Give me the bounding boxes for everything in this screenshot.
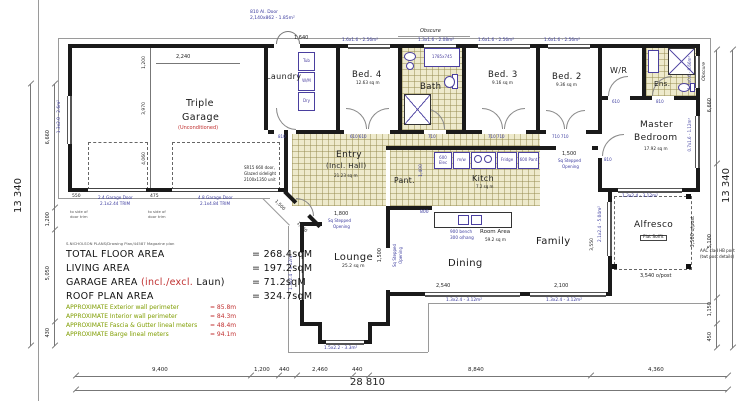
garage-door-1-size: 2.1x2.44 TRIM <box>100 202 130 206</box>
garage-door-2-label: 4.8 Garage Door <box>198 196 233 200</box>
wall-segment <box>284 130 288 192</box>
wall-segment <box>386 210 390 248</box>
kitchen-ohang-label: 300 o/hang <box>450 236 474 240</box>
dim-bottom-9400: 9,400 <box>152 368 168 374</box>
roof-outline <box>710 38 711 304</box>
floor-plan-drawing: Tub W/M Dry 1785x745 600 Elec m/w Fridge… <box>0 0 750 401</box>
dim-line-left-segments <box>54 84 55 346</box>
garage-label-red-part: (incl./excl. <box>141 277 193 288</box>
drawing-fine-print: S.NICHOLSON PLANS/Drawing Plan/44587 Mag… <box>66 242 174 246</box>
wall-segment <box>630 96 652 100</box>
roof-outline <box>58 38 710 39</box>
door-arc-bed4-robe <box>346 108 367 129</box>
dim-tick <box>52 204 58 210</box>
wall-segment <box>364 340 372 344</box>
wall-segment <box>268 130 274 134</box>
table-label-garage: GARAGE AREA (incl./excl. Laun) <box>66 277 225 288</box>
wall-segment <box>372 322 390 326</box>
wall-segment <box>68 44 274 48</box>
wall-segment <box>696 44 700 56</box>
dim-2540: 2,540 <box>436 284 450 289</box>
approx-exterior-label: APPROXIMATE Exterior wall perimeter <box>66 305 179 311</box>
wall-segment <box>386 146 542 150</box>
dim-right-5100: 5,100 <box>708 234 713 248</box>
dim-line-garage <box>150 48 151 188</box>
dim-800-kitchen: 800 <box>420 211 429 216</box>
door-size-wr: 610 <box>612 100 620 104</box>
sr15-note-2: Glazed sidelight <box>244 172 276 176</box>
room-area-value: 59.2 sq m <box>485 238 506 242</box>
door-arc-bed2 <box>566 110 585 129</box>
dim-tick <box>714 320 720 326</box>
window-label-bay: 1.5x2.2 - 3.3m² <box>324 347 357 351</box>
approx-barge-label: APPROXIMATE Barge lineal meters <box>66 332 169 338</box>
wall-segment <box>318 322 322 342</box>
wall-segment <box>606 292 612 296</box>
window-label-master-bottom: 1.3x2.4 - 3.12m² <box>622 195 658 199</box>
window-bay <box>326 340 364 345</box>
dim-right-total: 13 340 <box>722 168 732 203</box>
bathtub-icon: 1785x745 <box>424 48 460 67</box>
window-dining-2 <box>530 292 606 297</box>
approx-fascia-value: = 48.4m <box>210 323 236 329</box>
wall-segment <box>146 188 172 192</box>
wall-segment <box>642 48 646 96</box>
garage-label-part: GARAGE AREA <box>66 277 141 288</box>
wall-segment <box>696 88 700 116</box>
dim-line-right-total <box>732 50 733 348</box>
wall-segment <box>296 130 344 134</box>
garage-door-recess <box>88 142 148 190</box>
dim-right-6660: 6,660 <box>708 98 713 112</box>
dim-tick <box>714 344 720 350</box>
wall-segment <box>526 130 546 134</box>
entry-opening-dim: 1,800 <box>334 212 348 217</box>
dim-left-6660: 6,660 <box>46 130 51 144</box>
family-opening-dim: 1,500 <box>562 152 576 157</box>
roof-outline <box>58 198 270 199</box>
table-label-living: LIVING AREA <box>66 263 130 274</box>
room-label-laundry: Laundry <box>266 72 301 81</box>
dim-right-1150: 1,150 <box>708 302 713 316</box>
door-arc-wr <box>608 76 628 96</box>
dryer-icon: Dry <box>298 92 315 111</box>
sr15-note-3: 2100x1350 unit <box>244 178 276 182</box>
room-label-pantry: Pant. <box>394 176 415 185</box>
area-label-bed2: 9.36 sq m <box>556 83 577 87</box>
room-label-master-2: Bedroom <box>634 133 678 143</box>
door-size-master: 810 <box>604 158 612 162</box>
dim-line-left-total <box>30 84 31 346</box>
wall-segment <box>608 256 612 296</box>
approx-fascia-label: APPROXIMATE Fascia & Gutter lineal meter… <box>66 323 197 329</box>
window-label-garage: 1.3x2.0 - 2.6m² <box>58 100 62 133</box>
dim-3540-opost: 3,540 o/post <box>640 274 671 279</box>
shower-icon <box>404 94 431 125</box>
obscure-note-top: Obscure <box>420 29 441 34</box>
wall-segment <box>682 188 700 192</box>
dim-bottom-8840: 8,840 <box>468 368 484 374</box>
door-arc-bed3 <box>482 108 503 129</box>
dim-line-right-segments <box>716 50 717 348</box>
dim-3970: 3,970 <box>143 102 148 115</box>
garage-door-1-label: 2.4 Garage Door <box>98 196 133 200</box>
door-size-bath: 710 <box>428 135 436 139</box>
wall-segment <box>68 188 88 192</box>
basin-icon <box>404 52 416 61</box>
lounge-opening-note-1: Sq Stepped <box>393 244 397 267</box>
wall-segment <box>520 292 530 296</box>
sink-bowl-icon <box>484 155 492 163</box>
dim-tick <box>725 386 731 392</box>
obscure-note-right: Obscure <box>703 62 708 81</box>
wall-segment <box>536 48 540 130</box>
wall-segment <box>592 146 598 150</box>
dim-bottom-total: 28 810 <box>350 378 385 388</box>
wall-segment <box>446 130 482 134</box>
alfresco-post <box>686 194 691 199</box>
garage-door-2-size: 2.1x4.84 TRIM <box>200 202 230 206</box>
dim-left-430: 430 <box>46 328 51 338</box>
dim-line-bottom-total <box>75 390 727 391</box>
window-bed3 <box>478 44 530 49</box>
dim-1400-kitchen: 1,400 <box>420 164 425 177</box>
door-arc-master <box>602 134 624 156</box>
wall-segment <box>586 130 598 134</box>
dim-475: 475 <box>150 195 159 200</box>
dim-3550: 3,550 <box>591 238 596 251</box>
door-arc-bed4-robe <box>368 108 389 129</box>
wall-segment <box>264 48 268 130</box>
room-label-kitchen: Kitch <box>472 174 494 183</box>
alfresco-outline <box>614 196 692 270</box>
fridge-icon: Fridge <box>497 152 517 169</box>
dim-tick <box>730 344 736 350</box>
window-label-family: 1.3x2.4 - 3.12m² <box>546 299 582 303</box>
room-label-garage-1: Triple <box>186 98 214 109</box>
dim-tick <box>52 226 58 232</box>
alfresco-post <box>686 264 691 269</box>
island-sink-icon <box>471 215 482 225</box>
microwave-icon: m/w <box>453 152 470 169</box>
door-arc-laundry <box>276 108 296 130</box>
garage-label-part-2: Laun) <box>193 277 225 288</box>
entry-opening-note-2: Opening <box>333 225 350 229</box>
wall-segment <box>386 292 425 296</box>
wall-segment <box>598 158 602 192</box>
room-label-family: Family <box>536 236 571 247</box>
roof-outline <box>288 352 428 353</box>
laundry-tub-icon: Tub <box>298 52 315 71</box>
room-label-ens: Ens. <box>654 80 670 88</box>
dim-tick <box>52 318 58 324</box>
window-label-ens: 1.1x0.6 - 0.66m² <box>688 56 692 89</box>
sink-bowl-icon <box>474 155 482 163</box>
dim-line-bottom-segments <box>75 376 727 377</box>
alfresco-flat-soffit-tag: Flat Soffit <box>640 235 667 241</box>
dim-line-2240 <box>156 63 240 64</box>
garage-door-panel <box>88 188 146 192</box>
obscure-leader-line <box>398 36 470 37</box>
door-size-laundry: 810 <box>278 135 286 139</box>
dim-tick <box>714 294 720 300</box>
door-size-bed2: 710 710 <box>552 135 569 139</box>
dim-bottom-1200: 1,200 <box>254 368 270 374</box>
entry-opening-note-1: Sq Stepped <box>328 219 351 223</box>
door-size-bed4: 610 610 <box>350 135 367 139</box>
oven-icon: 600 Elec <box>434 152 452 169</box>
dim-right-450: 450 <box>708 332 713 342</box>
area-label-entry: 21.23 sq m <box>334 174 358 178</box>
window-label-alfresco: 2.1x2.4 - 5.04m² <box>599 206 603 242</box>
table-value-roof: = 324.7sqM <box>252 291 312 302</box>
window-label-bed2: 1.6x1.6 - 2.56m² <box>544 39 580 43</box>
pantry-cupboard-icon: 600 Pant <box>518 152 539 169</box>
trim-note: door trim <box>148 215 166 219</box>
dim-1200-garage: 1,200 <box>143 56 148 69</box>
window-label-bed3: 1.6x1.6 - 2.56m² <box>478 39 514 43</box>
room-label-bed2: Bed. 2 <box>552 72 582 82</box>
wall-segment <box>368 322 372 342</box>
site-boundary-line <box>38 0 39 401</box>
al-door-note-2: 2,140x862 - 1.85m² <box>250 17 295 22</box>
table-label-total-floor: TOTAL FLOOR AREA <box>66 249 165 260</box>
wall-segment <box>68 144 72 192</box>
area-label-bed4: 12.63 sq m <box>356 81 380 85</box>
window-label-bath: 1.3x1.6 - 2.08m² <box>418 39 454 43</box>
room-label-bed4: Bed. 4 <box>352 70 382 80</box>
door-arc-bed2 <box>546 110 565 129</box>
dim-2100: 2,100 <box>554 284 568 289</box>
wall-segment <box>598 96 608 100</box>
room-label-garage-2: Garage <box>182 112 219 123</box>
wall-segment <box>386 290 390 322</box>
dim-4060: 4,060 <box>143 152 148 165</box>
area-label-master: 17.92 sq m <box>644 147 668 151</box>
family-opening-note-1: Sq Stepped <box>558 159 581 163</box>
vanity-icon <box>648 50 659 73</box>
window-garage <box>67 96 72 144</box>
wall-segment <box>300 44 348 48</box>
wall-segment <box>542 146 556 150</box>
dim-tick <box>52 342 58 348</box>
dim-bottom-440b: 440 <box>352 368 363 374</box>
garage-door-panel <box>172 188 278 192</box>
room-label-entry-1: Entry <box>336 150 362 160</box>
room-label-alfresco: Alfresco <box>634 220 673 230</box>
island-sink-icon <box>458 215 469 225</box>
room-label-wr: W/R <box>610 66 627 75</box>
lounge-opening-dim: 1,500 <box>378 248 383 262</box>
dim-bottom-4360: 4,360 <box>648 368 664 374</box>
room-label-master-1: Master <box>640 120 673 130</box>
approx-interior-label: APPROXIMATE Interior wall perimeter <box>66 314 177 320</box>
window-dining <box>425 292 520 297</box>
window-bed2 <box>548 44 590 49</box>
window-ens <box>695 56 700 88</box>
wall-segment <box>336 48 340 130</box>
approx-exterior-value: = 85.8m <box>210 305 236 311</box>
dim-1640: 1,640 <box>294 36 308 41</box>
room-area-label: Room Area <box>480 230 510 236</box>
wall-segment <box>68 44 72 96</box>
dim-bottom-440a: 440 <box>279 368 290 374</box>
window-bed4 <box>348 44 390 49</box>
trim-note: door trim <box>70 215 88 219</box>
wall-segment <box>390 44 424 48</box>
dim-tick <box>28 80 34 86</box>
aac-note-1: AAC clad HB post <box>700 249 735 253</box>
dim-2240: 2,240 <box>176 55 190 60</box>
toilet-icon <box>444 76 455 88</box>
room-label-bed3: Bed. 3 <box>488 70 518 80</box>
wall-segment <box>300 300 304 326</box>
wall-segment <box>608 192 612 202</box>
wall-segment <box>598 48 602 134</box>
dim-tick <box>714 160 720 166</box>
room-label-entry-2: (Incl. Hall) <box>326 162 366 170</box>
window-master-bottom <box>618 188 682 193</box>
dim-left-1200: 1,200 <box>46 212 51 226</box>
wall-segment <box>318 340 326 344</box>
wall-segment <box>462 48 466 130</box>
wall-segment <box>390 130 424 134</box>
dim-tick <box>714 46 720 52</box>
dim-left-total: 13 340 <box>14 178 24 213</box>
wall-segment <box>398 48 402 130</box>
area-label-lounge: 25.2 sq m <box>342 265 364 270</box>
dim-550: 550 <box>72 195 81 200</box>
door-arc-bed3 <box>504 108 525 129</box>
garage-unconditioned-note: (Unconditioned) <box>178 126 218 131</box>
table-value-living: = 197.2sqM <box>252 263 312 274</box>
approx-interior-value: = 84.3m <box>210 314 236 320</box>
lounge-opening-note-2: Opening <box>399 247 403 264</box>
dim-3500-opost: 3,500 o/post <box>691 216 696 247</box>
dim-bottom-2460: 2,460 <box>312 368 328 374</box>
window-family <box>607 202 612 256</box>
door-size-bed3: 710 710 <box>488 135 505 139</box>
dim-left-5050: 5,050 <box>46 266 51 280</box>
door-size-ens: 810 <box>656 100 664 104</box>
al-door-note-1: 810 Al. Door <box>250 11 278 16</box>
sr15-note-1: SR15 660 door, <box>244 166 275 170</box>
window-label-master-right: 0.7x1.6 - 1.12m² <box>688 118 692 151</box>
window-label-dining: 1.3x2.4 - 3.12m² <box>446 299 482 303</box>
room-label-bath: Bath <box>420 82 441 92</box>
alfresco-post <box>612 264 617 269</box>
kitchen-bench-label: 900 bench <box>450 230 472 234</box>
room-label-lounge: Lounge <box>334 252 373 263</box>
table-value-garage: = 71.2sqM <box>252 277 306 288</box>
area-label-bed3: 9.16 sq m <box>492 81 513 85</box>
table-label-roof: ROOF PLAN AREA <box>66 291 154 302</box>
family-opening-note-2: Opening <box>562 165 579 169</box>
dim-tick <box>725 372 731 378</box>
window-label-bed4: 1.6x1.6 - 2.56m² <box>342 39 378 43</box>
approx-barge-value: = 94.1m <box>210 332 236 338</box>
table-value-total-floor: = 268.4sqM <box>252 249 312 260</box>
area-label-kitchen: 7.2 sq m <box>476 185 493 189</box>
roof-outline <box>428 303 429 352</box>
aac-note-2: (twt post details) <box>700 255 734 259</box>
dim-tick <box>28 342 34 348</box>
basin-pedestal-icon <box>406 62 414 70</box>
window-master-right <box>695 116 700 168</box>
room-label-dining: Dining <box>448 258 483 269</box>
dim-tick <box>730 46 736 52</box>
